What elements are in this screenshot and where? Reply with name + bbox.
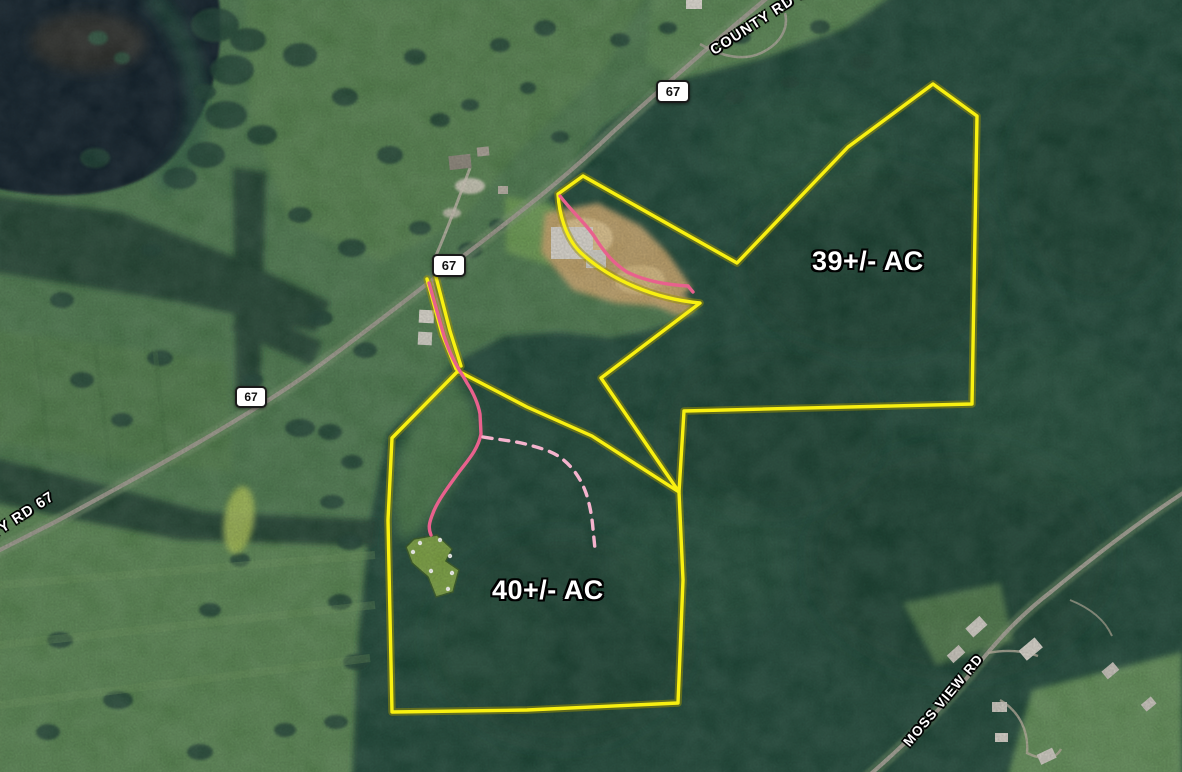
- route-67-shield-left-label: 67: [244, 390, 257, 404]
- mottle-overlay: [0, 0, 1182, 772]
- satellite-base: [0, 0, 1182, 772]
- parcel-40-acreage-label: 40+/- AC: [492, 575, 604, 606]
- route-67-shield-top: 67: [656, 80, 690, 103]
- aerial-map: 67 67 67 COUNTY RD 67 COUNTY RD 67 MOSS …: [0, 0, 1182, 772]
- route-67-shield-left: 67: [235, 386, 267, 408]
- parcel-39-acreage-label: 39+/- AC: [812, 246, 924, 277]
- route-67-shield-top-label: 67: [666, 84, 680, 99]
- route-67-shield-middle: 67: [432, 254, 466, 277]
- route-67-shield-middle-label: 67: [442, 258, 456, 273]
